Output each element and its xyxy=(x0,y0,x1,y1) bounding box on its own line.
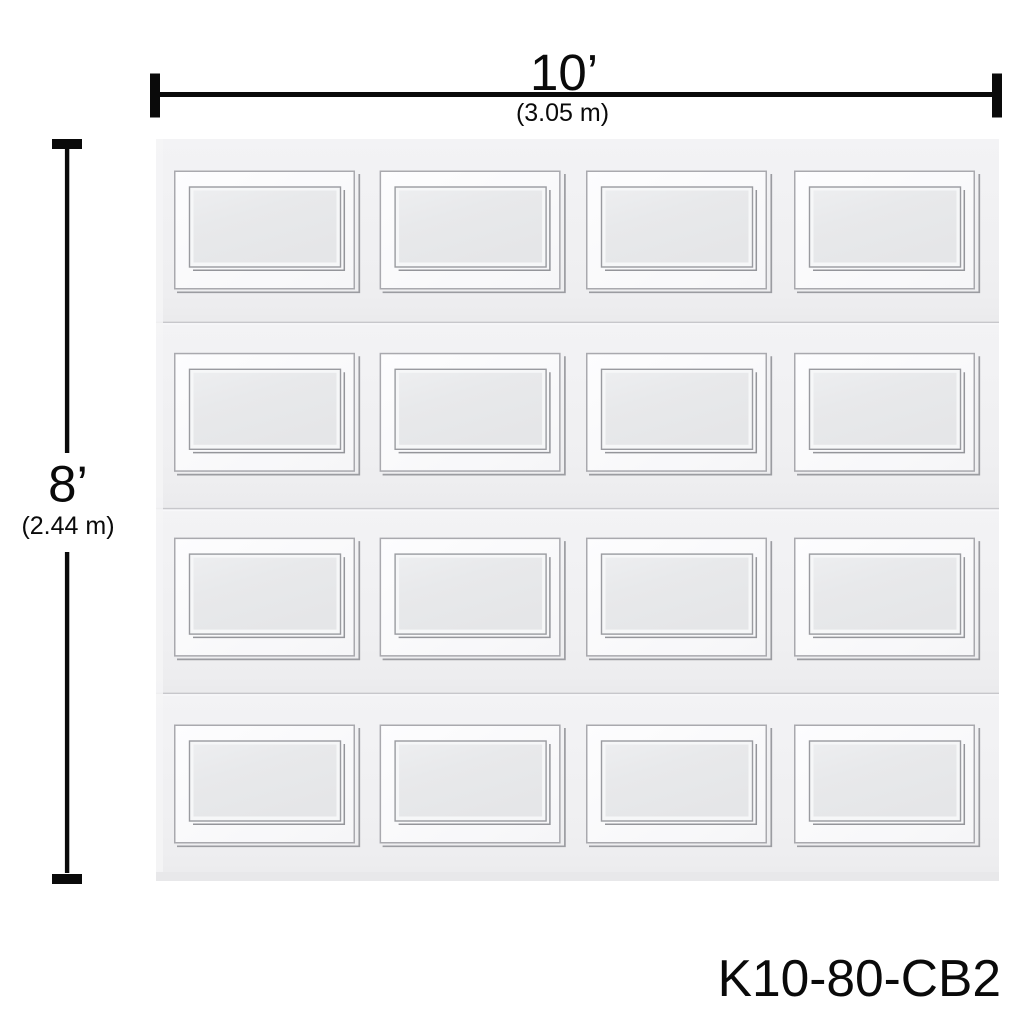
svg-text:K10-80-CB2: K10-80-CB2 xyxy=(718,949,1001,1007)
svg-text:8’: 8’ xyxy=(48,456,88,513)
svg-text:10’: 10’ xyxy=(530,44,598,101)
svg-text:(3.05 m): (3.05 m) xyxy=(516,99,609,127)
svg-text:(2.44 m): (2.44 m) xyxy=(21,512,114,540)
